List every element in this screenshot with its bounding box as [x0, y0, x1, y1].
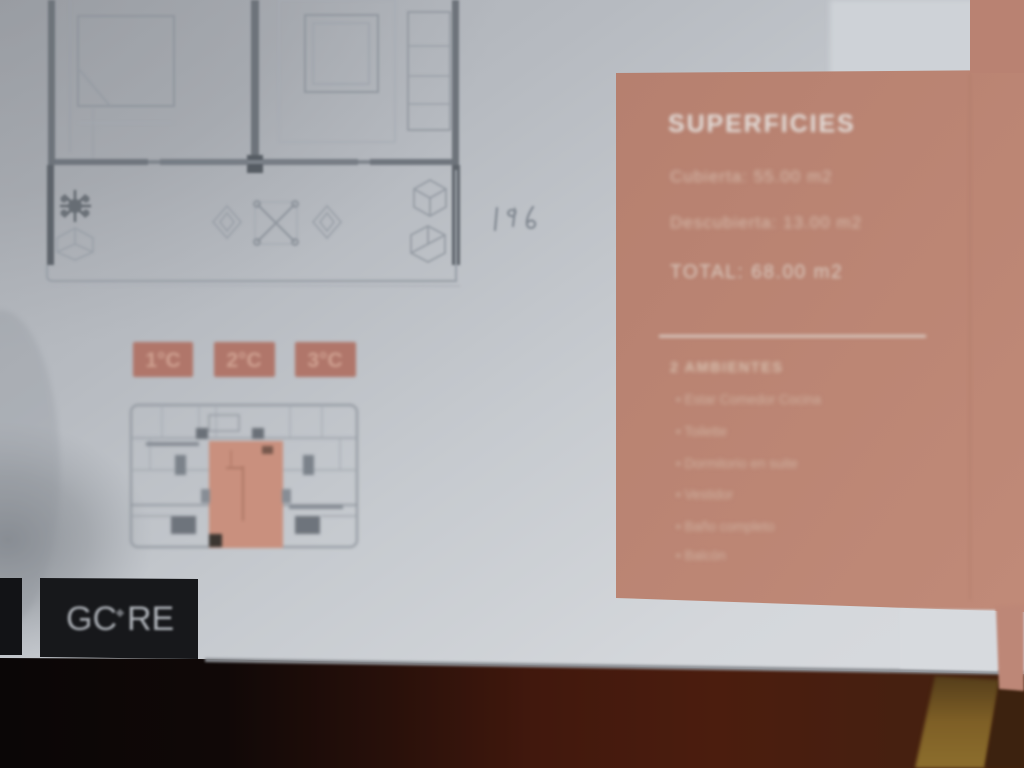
svg-text:• Estar Comedor Cocina: • Estar Comedor Cocina — [676, 392, 822, 407]
svg-text:1°C: 1°C — [145, 349, 180, 372]
svg-text:RE: RE — [127, 600, 174, 638]
svg-text:GC: GC — [66, 600, 117, 638]
svg-text:• Baño completo: • Baño completo — [676, 519, 775, 534]
svg-text:2 AMBIENTES: 2 AMBIENTES — [670, 360, 783, 376]
svg-text:2°C: 2°C — [226, 349, 261, 372]
svg-text:TOTAL: 68.00 m2: TOTAL: 68.00 m2 — [670, 262, 843, 283]
svg-text:• Balcón: • Balcón — [676, 548, 726, 563]
svg-text:• Toilette: • Toilette — [676, 424, 727, 439]
svg-text:Descubierta: 13.00 m2: Descubierta: 13.00 m2 — [670, 213, 862, 232]
svg-text:3°C: 3°C — [307, 349, 342, 372]
svg-text:• Vestidor: • Vestidor — [676, 487, 734, 502]
svg-text:SUPERFICIES: SUPERFICIES — [668, 110, 856, 138]
svg-text:• Dormitorio en suite: • Dormitorio en suite — [676, 456, 798, 471]
svg-text:Cubierta: 55.00 m2: Cubierta: 55.00 m2 — [670, 167, 833, 186]
